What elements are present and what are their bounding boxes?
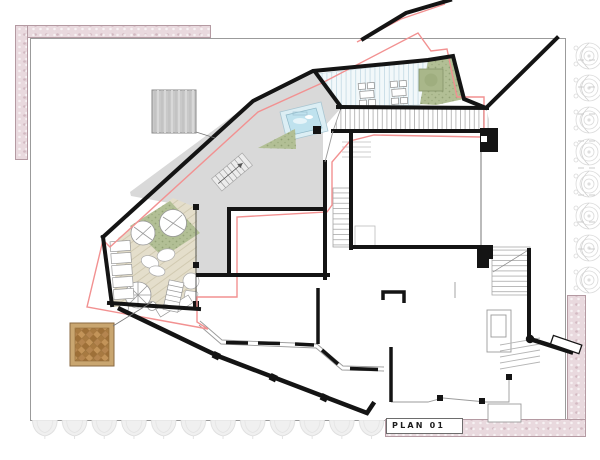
wall-joint-dot — [526, 335, 534, 343]
thin-diagonal — [325, 131, 333, 162]
veranda-columns — [212, 351, 512, 404]
east-stair — [492, 247, 530, 295]
pool-column — [313, 126, 321, 134]
lower-level-outlines — [199, 282, 540, 422]
title-box: PLAN 01 — [386, 418, 463, 434]
dimension-ticks — [578, 60, 595, 249]
floor-plan-drawing — [0, 0, 600, 460]
central-stair — [333, 142, 375, 247]
drawing-page: PLAN 01 — [0, 0, 600, 460]
stone-texture-swatch — [152, 90, 215, 138]
upper-stair-band — [333, 108, 490, 131]
plan-title: PLAN 01 — [392, 421, 445, 430]
